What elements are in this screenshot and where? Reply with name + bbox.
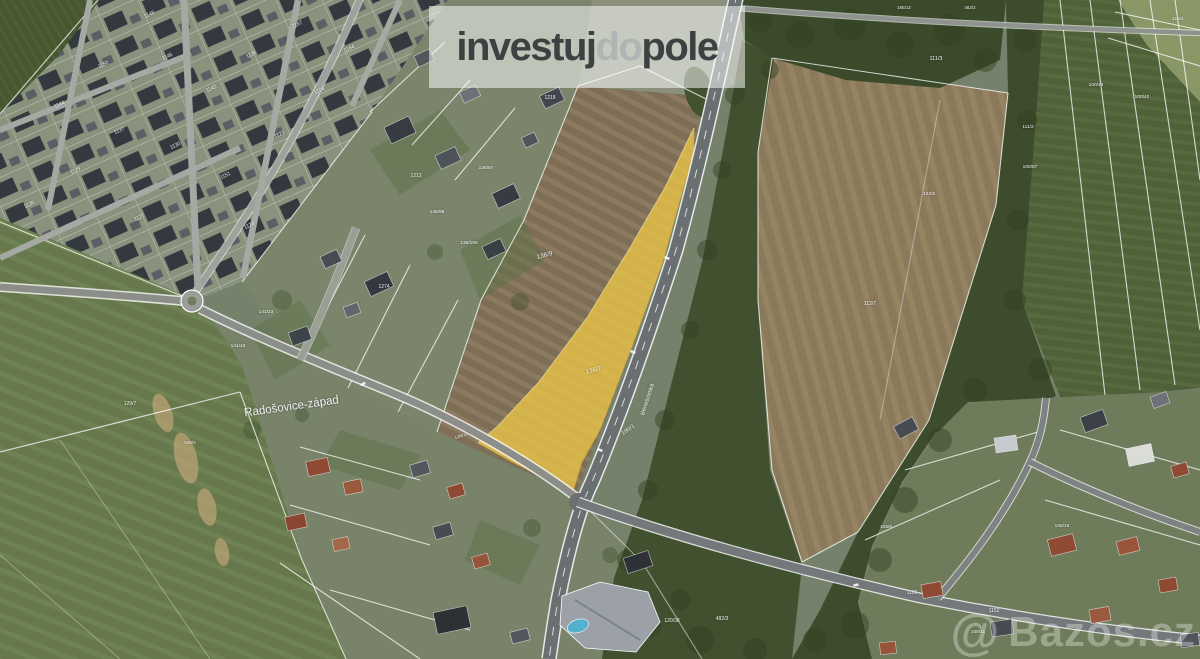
bazos-watermark-text: Bazos.cz [1008,608,1196,656]
parcel-label: 462/2 [964,5,976,10]
parcel-label: 1213 [410,173,421,179]
satellite-listing-photo: Radošovice-západ136/9136/7190/1Benešovsk… [0,0,1200,659]
parcel-label: 136/87 [479,165,494,171]
investujdopole-watermark: investujdopole [429,6,745,88]
parcel-label: 1274 [378,284,389,290]
parcel-label: 141/23 [259,309,274,315]
parcel-label: 136/98 [430,209,445,215]
parcel-label: 129/7 [124,401,137,407]
parcel-label: 482/3 [716,616,729,622]
parcel-label: 1218 [544,95,555,101]
parcel-label: 105/6 [880,524,892,530]
parcel-label: 100/46 [1089,82,1104,88]
parcel-label: 100/87 [1023,164,1038,170]
parcel-label: 115/1 [1172,16,1184,22]
parcel-label: 100/42 [1135,94,1150,100]
parcel-label: 136/159 [460,240,478,246]
parcel-label: 1186 [907,590,918,596]
parcel-label: 120/38 [664,618,680,624]
parcel-label: 548/3 [184,440,196,445]
satellite-map: Radošovice-západ136/9136/7190/1Benešovsk… [0,0,1200,659]
at-icon: @ [951,607,1001,657]
logo-text-pole: pole [641,25,717,70]
bazos-watermark: @ Bazos.cz [951,607,1197,657]
parcel-label: 106/15 [1055,523,1070,529]
roundabout-centre [188,297,197,306]
logo-text-investuj: investuj [456,25,595,70]
parcel-label: 141/19 [231,343,246,349]
parcel-label: 165/12 [897,5,911,10]
parcel-label: 112/7 [864,301,876,307]
logo-text-do: do [596,25,642,70]
parcel-label: 122/8 [923,191,935,197]
parcel-label: 111/3 [930,56,943,62]
parcel-label: 111/2 [1022,124,1034,130]
